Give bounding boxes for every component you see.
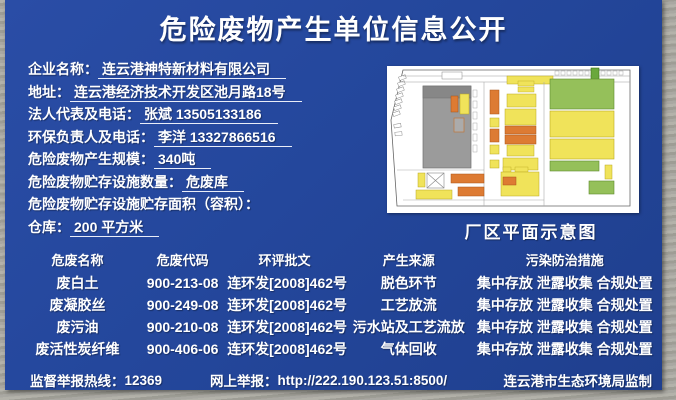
field-label: 仓库： (28, 219, 70, 235)
information-board: 危险废物产生单位信息公开 企业名称：连云港神特新材料有限公司 地址：连云港经济技… (5, 0, 662, 390)
cell-waste-name: 废白土 (17, 272, 138, 294)
cell-waste-code: 900-213-08 (138, 272, 227, 294)
table-row: 废活性炭纤维 900-406-06 连环发[2008]462号 气体回收 集中存… (17, 338, 654, 360)
field-storage-area-label: 危险废物贮存设施贮存面积（容积）： (28, 193, 373, 216)
cell-eia-approval: 连环发[2008]462号 (227, 338, 342, 360)
field-warehouse-area: 仓库：200 平方米 (28, 216, 373, 239)
company-info-fields: 企业名称：连云港神特新材料有限公司 地址：连云港经济技术开发区池月路18号 法人… (28, 58, 373, 238)
field-label: 企业名称： (28, 61, 98, 77)
field-value: 连云港经济技术开发区池月路18号 (70, 84, 302, 102)
field-label: 地址： (28, 84, 70, 100)
col-header-eia-approval: 环评批文 (227, 250, 342, 272)
site-plan-map (387, 66, 639, 213)
producer-credit: 连云港市生态环境局监制 (504, 370, 653, 390)
table-row: 废凝胶丝 900-249-08 连环发[2008]462号 工艺放流 集中存放 … (17, 294, 654, 316)
cell-source: 脱色环节 (342, 272, 476, 294)
cell-measures: 集中存放 泄露收集 合规处置 (476, 272, 654, 294)
cell-measures: 集中存放 泄露收集 合规处置 (476, 294, 654, 316)
field-address: 地址：连云港经济技术开发区池月路18号 (28, 81, 373, 104)
hotline-number: 12369 (125, 373, 163, 388)
col-header-waste-name: 危废名称 (17, 250, 138, 272)
table-row: 废白土 900-213-08 连环发[2008]462号 脱色环节 集中存放 泄… (17, 272, 654, 294)
site-plan-drawing (387, 66, 639, 213)
cell-waste-code: 900-210-08 (138, 316, 227, 338)
cell-eia-approval: 连环发[2008]462号 (227, 316, 342, 338)
cell-waste-name: 废凝胶丝 (17, 294, 138, 316)
field-value: 李洋 13327866516 (154, 129, 292, 147)
cell-eia-approval: 连环发[2008]462号 (227, 294, 342, 316)
cell-measures: 集中存放 泄露收集 合规处置 (476, 316, 654, 338)
field-label: 环保负责人及电话： (28, 129, 154, 145)
footer: 监督举报热线： 12369 网上举报： http://222.190.123.5… (5, 369, 662, 391)
col-header-waste-code: 危废代码 (138, 250, 227, 272)
map-caption: 厂区平面示意图 (387, 218, 639, 243)
online-report-url[interactable]: http://222.190.123.51:8500/ (278, 373, 448, 388)
cell-waste-code: 900-406-06 (138, 338, 227, 360)
cell-measures: 集中存放 泄露收集 合规处置 (476, 338, 654, 360)
table-header-row: 危废名称 危废代码 环评批文 产生来源 污染防治措施 (17, 250, 654, 272)
field-storage-count: 危险废物贮存设施数量：危废库 (28, 171, 373, 194)
field-value: 340吨 (154, 151, 211, 169)
waste-table: 危废名称 危废代码 环评批文 产生来源 污染防治措施 废白土 900-213-0… (17, 250, 654, 360)
col-header-source: 产生来源 (342, 250, 476, 272)
table-row: 废污油 900-210-08 连环发[2008]462号 污水站及工艺流放 集中… (17, 316, 654, 338)
page-title: 危险废物产生单位信息公开 (5, 8, 662, 47)
field-label: 危险废物产生规模： (28, 151, 154, 167)
cell-eia-approval: 连环发[2008]462号 (227, 272, 342, 294)
cell-waste-name: 废活性炭纤维 (17, 338, 138, 360)
col-header-measures: 污染防治措施 (476, 250, 654, 272)
field-env-officer-phone: 环保负责人及电话：李洋 13327866516 (28, 126, 373, 149)
field-label: 法人代表及电话： (28, 106, 140, 122)
cell-waste-name: 废污油 (17, 316, 138, 338)
field-value: 张斌 13505133186 (140, 106, 278, 124)
cell-source: 工艺放流 (342, 294, 476, 316)
hotline-label: 监督举报热线： (30, 370, 125, 390)
field-waste-scale: 危险废物产生规模：340吨 (28, 148, 373, 171)
online-report-label: 网上举报： (210, 370, 278, 390)
field-legal-rep-phone: 法人代表及电话：张斌 13505133186 (28, 103, 373, 126)
field-label: 危险废物贮存设施贮存面积（容积）： (28, 196, 259, 212)
field-label: 危险废物贮存设施数量： (28, 174, 182, 190)
field-value: 200 平方米 (70, 219, 159, 237)
cell-waste-code: 900-249-08 (138, 294, 227, 316)
cell-source: 污水站及工艺流放 (342, 316, 476, 338)
field-value: 连云港神特新材料有限公司 (98, 61, 286, 79)
field-value: 危废库 (182, 174, 244, 192)
cell-source: 气体回收 (342, 338, 476, 360)
field-company-name: 企业名称：连云港神特新材料有限公司 (28, 58, 373, 81)
